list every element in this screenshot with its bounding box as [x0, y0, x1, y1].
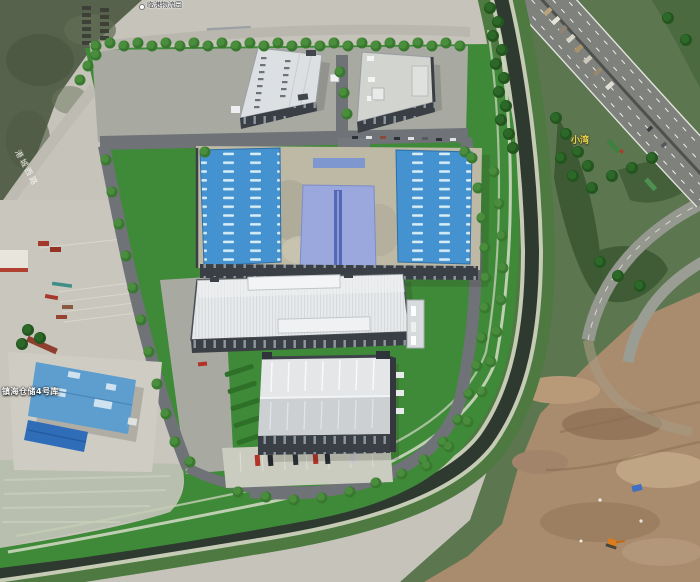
place-marker-dot[interactable] [139, 4, 145, 10]
roof-monitor-2 [278, 317, 370, 333]
center-north-skylight [313, 158, 365, 168]
aerial-view: 临港物流园 港城西路 镇海仓储4号库 小湾 [0, 0, 700, 582]
place-label-top[interactable]: 临港物流园 [147, 0, 182, 10]
warehouse-south [258, 351, 404, 462]
scene-canvas [0, 0, 700, 582]
warehouse-label-southwest[interactable]: 镇海仓储4号库 [2, 386, 59, 397]
roof-monitor-1 [248, 275, 340, 290]
blue-wing-east [396, 150, 472, 264]
warehouse-long [191, 273, 424, 353]
existing-blue-warehouse [8, 352, 162, 472]
blue-wing-west [200, 148, 281, 266]
factory-complex [196, 146, 490, 287]
village-label-east[interactable]: 小湾 [571, 133, 589, 146]
